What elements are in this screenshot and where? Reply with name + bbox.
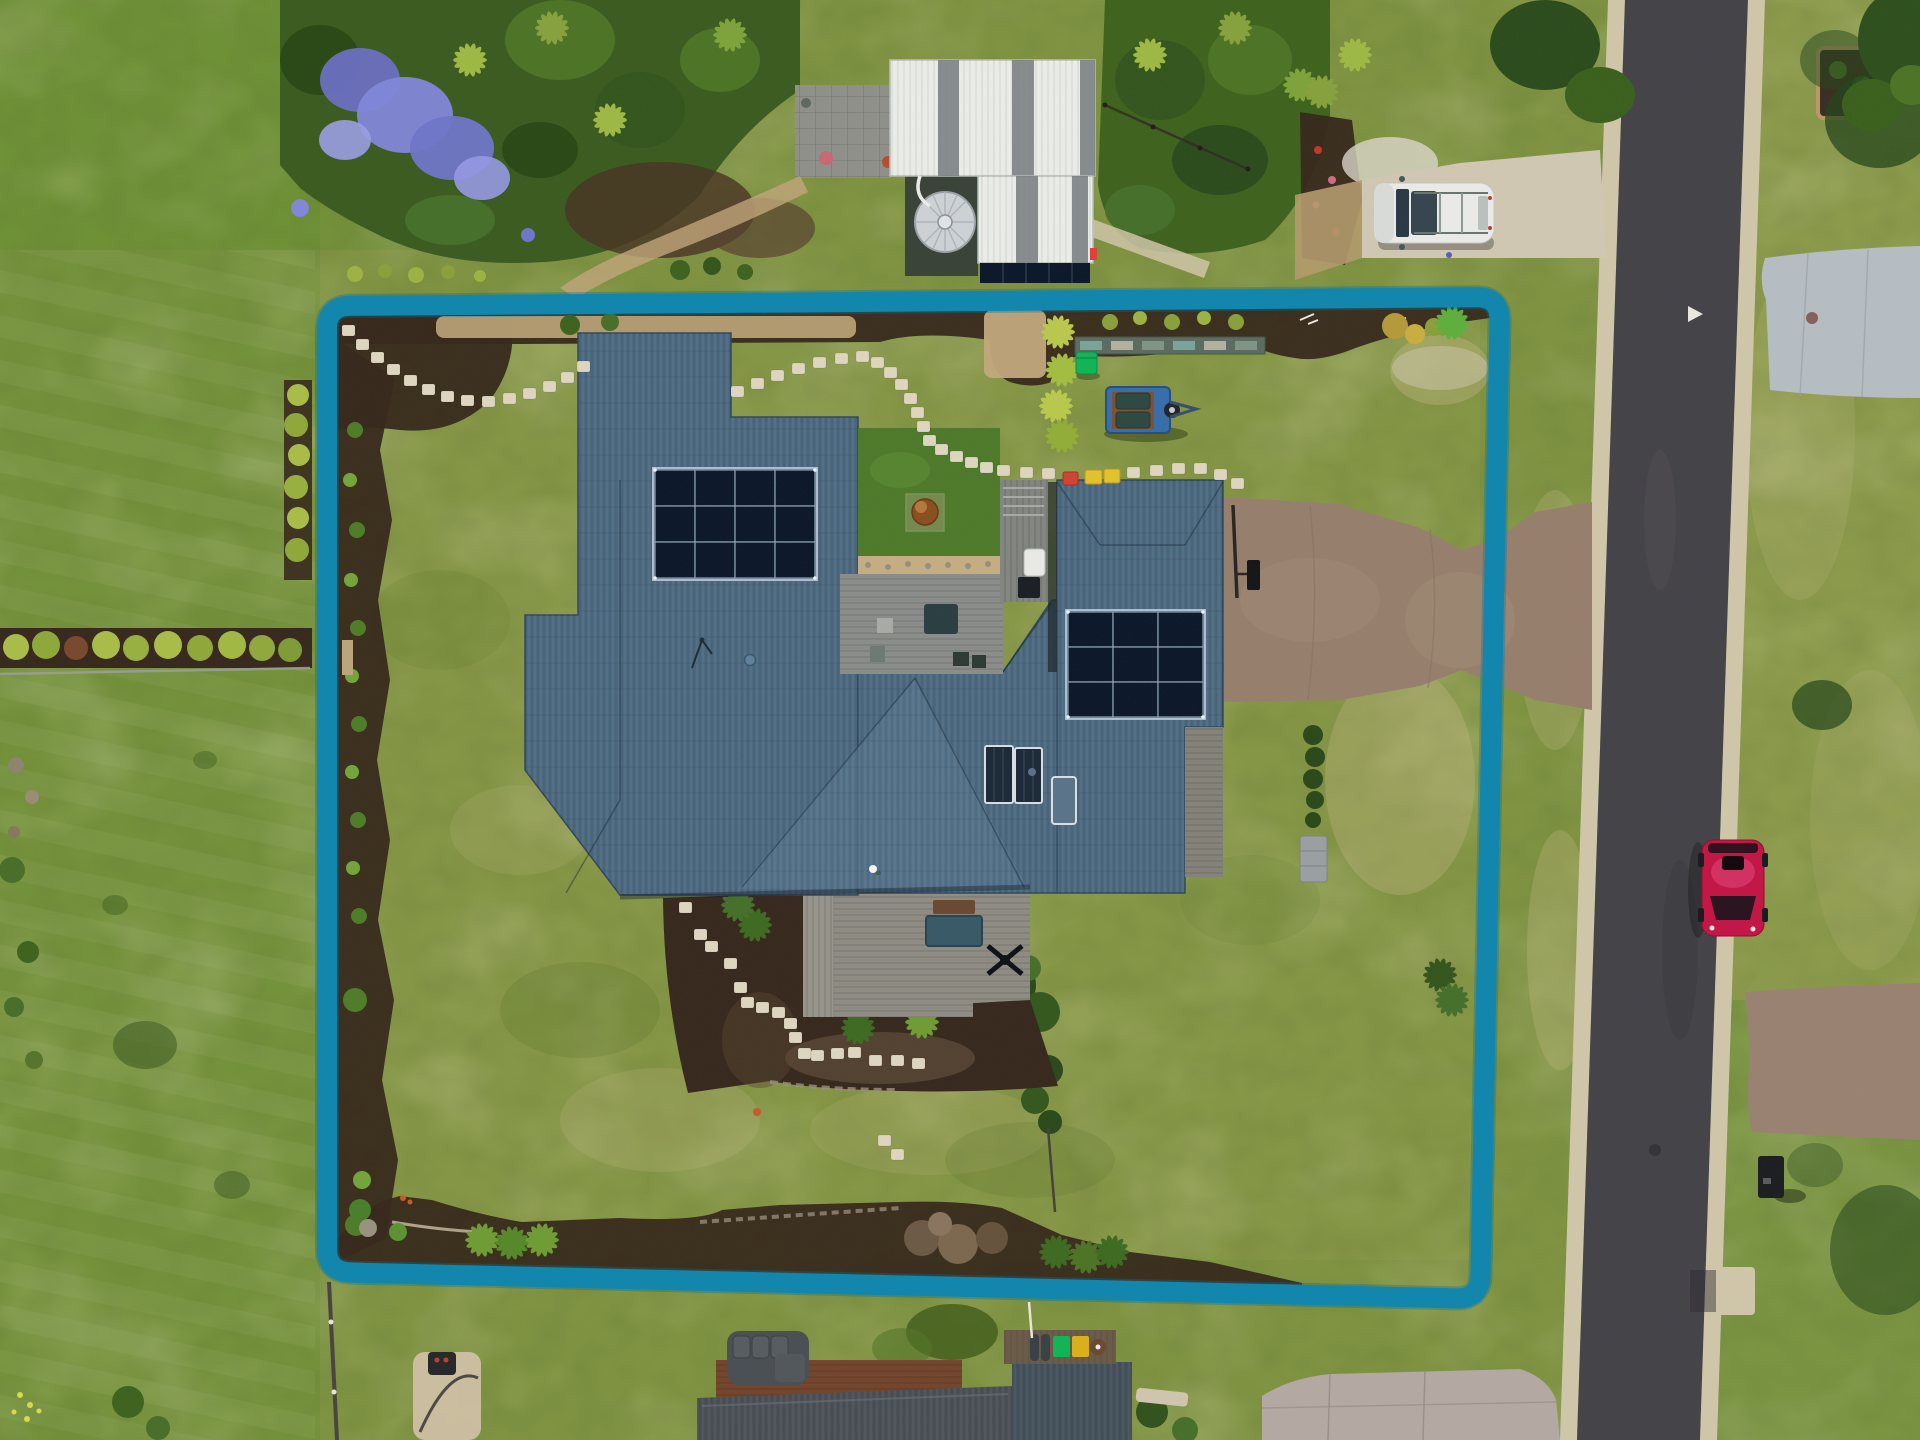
aerial-photo [0,0,1920,1440]
photo-grain [0,0,1920,1440]
aerial-photo-canvas [0,0,1920,1440]
